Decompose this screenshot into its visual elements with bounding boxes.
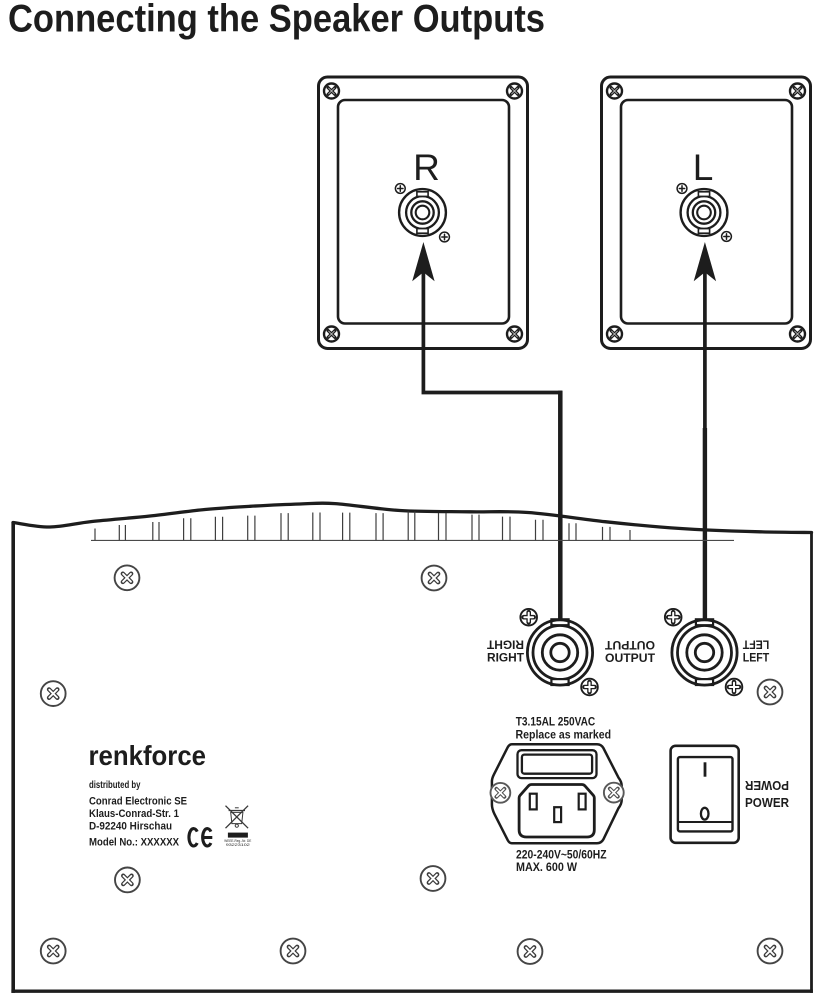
svg-text:D-92240 Hirschau: D-92240 Hirschau — [89, 821, 172, 833]
svg-text:Model No.: XXXXXX: Model No.: XXXXXX — [89, 837, 179, 849]
svg-text:Conrad Electronic SE: Conrad Electronic SE — [89, 796, 187, 808]
svg-text:93223102: 93223102 — [226, 842, 251, 847]
svg-text:POWER: POWER — [745, 796, 789, 810]
svg-text:RIGHT: RIGHT — [487, 653, 524, 665]
svg-text:T3.15AL 250VAC: T3.15AL 250VAC — [516, 717, 596, 729]
svg-text:L: L — [693, 147, 714, 188]
svg-text:LEFT: LEFT — [743, 638, 770, 650]
svg-text:OUTPUT: OUTPUT — [605, 638, 655, 650]
svg-text:Replace as marked: Replace as marked — [516, 730, 612, 742]
svg-text:MAX. 600 W: MAX. 600 W — [516, 862, 577, 874]
svg-text:Connecting the Speaker Outputs: Connecting the Speaker Outputs — [8, 0, 545, 41]
svg-text:LEFT: LEFT — [743, 653, 770, 665]
svg-text:POWER: POWER — [745, 778, 789, 792]
svg-text:distributed by: distributed by — [89, 780, 141, 791]
svg-text:RIGHT: RIGHT — [487, 638, 524, 650]
svg-text:220-240V~50/60HZ: 220-240V~50/60HZ — [516, 850, 607, 862]
svg-text:Klaus-Conrad-Str. 1: Klaus-Conrad-Str. 1 — [89, 808, 179, 820]
svg-text:renkforce: renkforce — [89, 740, 207, 771]
svg-text:OUTPUT: OUTPUT — [605, 653, 655, 665]
svg-text:R: R — [413, 147, 440, 188]
